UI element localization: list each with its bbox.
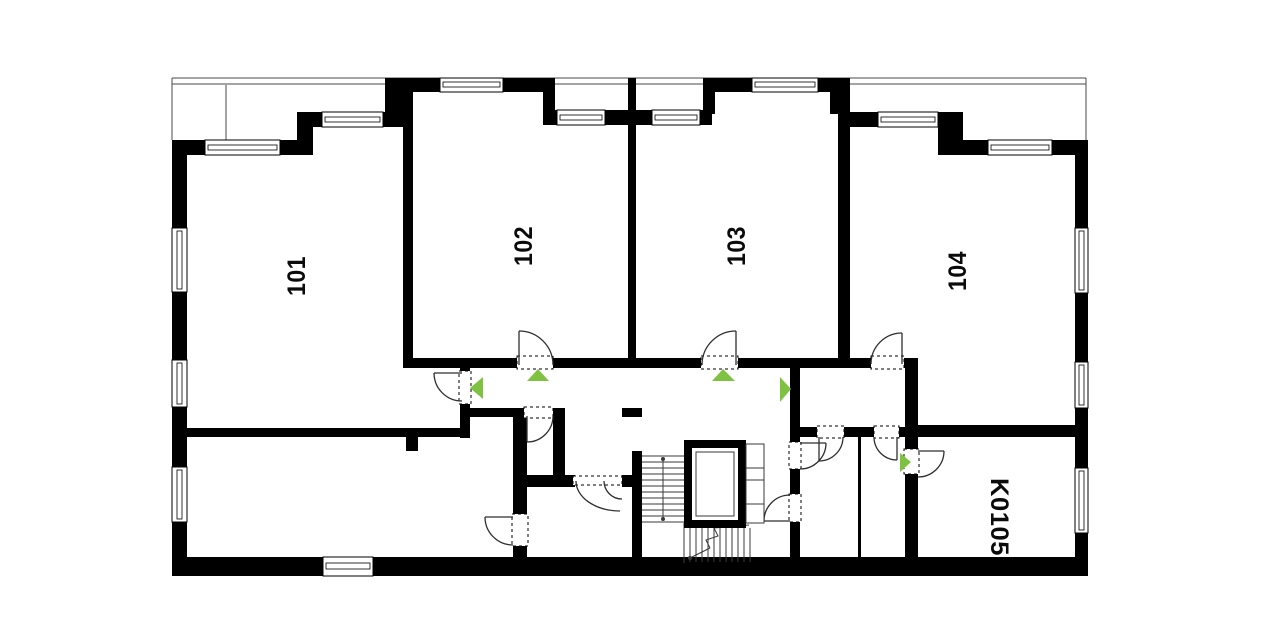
door-swing-storage: [527, 416, 553, 442]
door-frame-storage: [524, 407, 553, 418]
room-label-104: 104: [944, 251, 972, 291]
arrow-102-up: [527, 369, 549, 381]
arrow-103-up: [712, 369, 735, 381]
window: [988, 140, 1052, 155]
elevator: [684, 440, 746, 528]
wall-segment: [938, 112, 963, 155]
wall-segment: [632, 451, 642, 563]
door-frame-hall-a: [789, 442, 801, 469]
door-frame-101: [459, 371, 471, 404]
wall-segment: [403, 358, 918, 368]
floor-plan-drawing: 101 102 103 104 K0105: [0, 0, 1269, 640]
window: [878, 112, 938, 127]
wall-segment: [858, 437, 861, 557]
door-frame-wc-right: [874, 426, 899, 438]
floor-plan-page: 101 102 103 104 K0105: [0, 0, 1269, 640]
arrow-101-left: [470, 377, 483, 399]
window: [205, 140, 280, 155]
door-swing-wc-right: [874, 437, 897, 460]
exterior-walls: [172, 78, 1088, 576]
wall-segment: [172, 557, 1088, 576]
window: [440, 78, 503, 92]
window: [752, 78, 818, 92]
window: [652, 110, 700, 125]
wall-segment: [838, 78, 850, 368]
window: [322, 112, 383, 127]
room-label-101: 101: [283, 256, 311, 296]
arrow-104-right: [780, 377, 791, 402]
wall-segment: [622, 408, 642, 417]
door-frame-entrance: [573, 476, 622, 485]
door-frame-103: [701, 356, 738, 369]
door-frame-sw-room: [512, 514, 528, 546]
wall-segment: [543, 78, 555, 114]
window: [1075, 468, 1088, 533]
room-label-102: 102: [510, 226, 538, 266]
wall-segment: [622, 475, 632, 487]
window: [1075, 228, 1088, 293]
window: [557, 110, 605, 125]
wall-segment: [185, 428, 465, 437]
room-labels: 101 102 103 104 K0105: [283, 226, 1013, 556]
window: [323, 557, 373, 576]
shaft-compartments: [746, 444, 764, 523]
elevator-cabin: [696, 452, 734, 516]
wall-segment: [553, 415, 565, 477]
window: [1075, 362, 1088, 408]
room-label-k0105: K0105: [985, 478, 1013, 556]
wall-segment: [403, 78, 413, 368]
window: [172, 467, 187, 522]
door-frame-wc-left: [817, 426, 844, 438]
window: [172, 360, 187, 407]
door-swing-k0105: [918, 451, 944, 477]
wall-segment: [406, 437, 418, 451]
door-frame-102: [517, 356, 553, 369]
door-swing-hall-a: [800, 443, 826, 469]
door-frame-104: [871, 356, 904, 369]
window: [172, 228, 187, 292]
door-frame-hall-b: [789, 494, 801, 522]
door-swing-sw-room: [485, 517, 513, 545]
room-label-103: 103: [723, 226, 751, 266]
wall-segment: [905, 425, 1075, 437]
door-swing-101: [434, 373, 462, 401]
door-swing-wc-left: [819, 437, 843, 461]
door-swing-hall-b: [764, 495, 790, 521]
